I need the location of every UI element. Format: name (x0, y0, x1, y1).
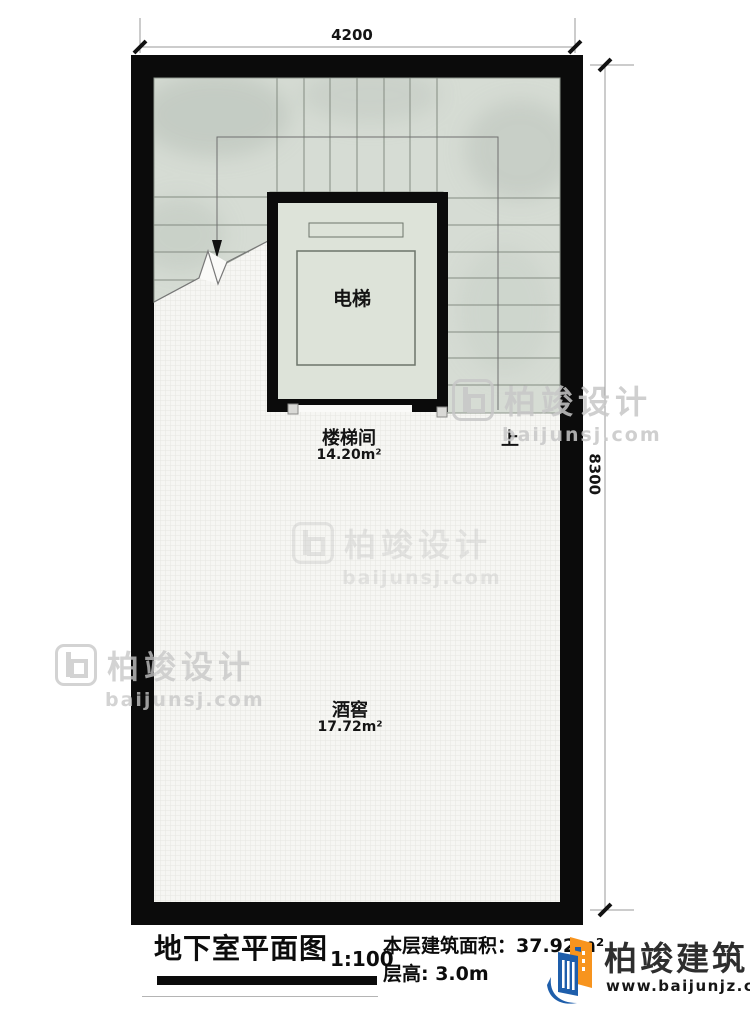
watermark-name: 柏竣设计 (344, 520, 492, 566)
watermark-site: baijunsj.com (502, 424, 662, 446)
watermark: 柏竣设计 baijunsj.com (452, 377, 662, 446)
watermark-logo-icon (292, 522, 334, 564)
watermark: 柏竣设计 baijunsj.com (292, 520, 502, 589)
title-underline-thin (142, 996, 378, 997)
company-logo-icon (545, 933, 603, 1007)
watermark: 柏竣设计 baijunsj.com (55, 642, 265, 711)
door-jamb (437, 407, 447, 417)
watermark-logo-icon (55, 644, 97, 686)
floor-height-text: 层高: 3.0m (383, 964, 489, 985)
wine-cellar-area: 17.72m² (290, 720, 410, 735)
wine-cellar-label: 酒窖 (290, 701, 410, 721)
floor-plan-drawing (0, 0, 750, 1012)
company-name: 柏竣建筑 (604, 941, 748, 977)
drawing-title: 地下室平面图 (154, 934, 328, 965)
stairwell-area: 14.20m² (289, 448, 409, 463)
watermark-name: 柏竣设计 (107, 642, 255, 688)
door-jamb (288, 404, 298, 414)
dimension-top-value: 4200 (302, 27, 402, 44)
elevator-label: 电梯 (292, 289, 412, 310)
stairwell-label: 楼梯间 (289, 429, 409, 449)
dimension-right-value: 8300 (586, 447, 603, 501)
floor-plan-page: 电梯 楼梯间 14.20m² 上 酒窖 17.72m² 4200 8300 柏竣… (0, 0, 750, 1012)
company-website: www.baijunjz.com (606, 978, 750, 995)
watermark-site: baijunsj.com (105, 689, 265, 711)
watermark-site: baijunsj.com (342, 567, 502, 589)
title-underline-bar (157, 976, 377, 985)
watermark-logo-icon (452, 379, 494, 421)
watermark-name: 柏竣设计 (504, 377, 652, 423)
